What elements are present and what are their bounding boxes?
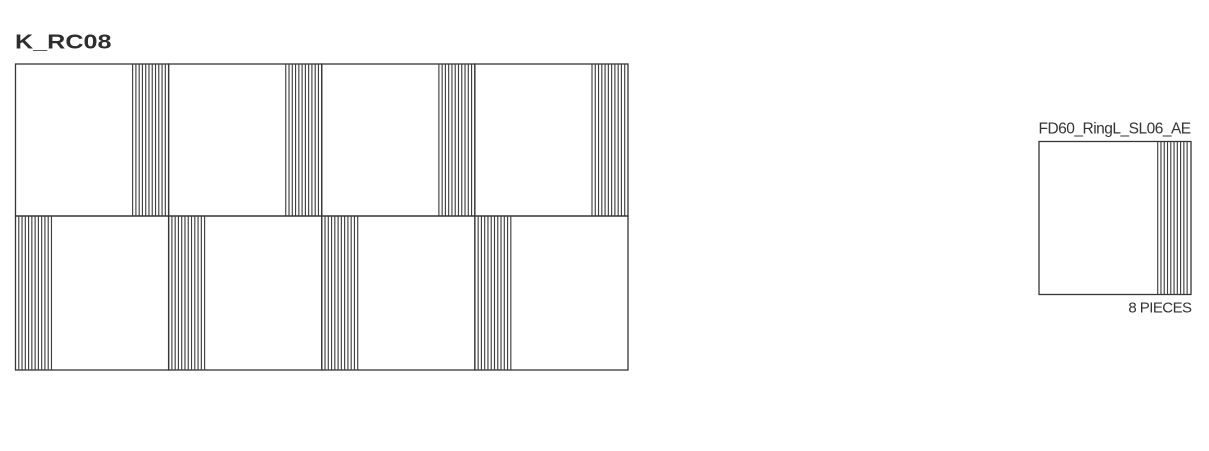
svg-text:K_RC08: K_RC08 xyxy=(15,31,112,54)
svg-text:FD60_RingL_SL06_AE: FD60_RingL_SL06_AE xyxy=(1039,121,1191,138)
svg-text:8 PIECES: 8 PIECES xyxy=(1128,300,1192,317)
